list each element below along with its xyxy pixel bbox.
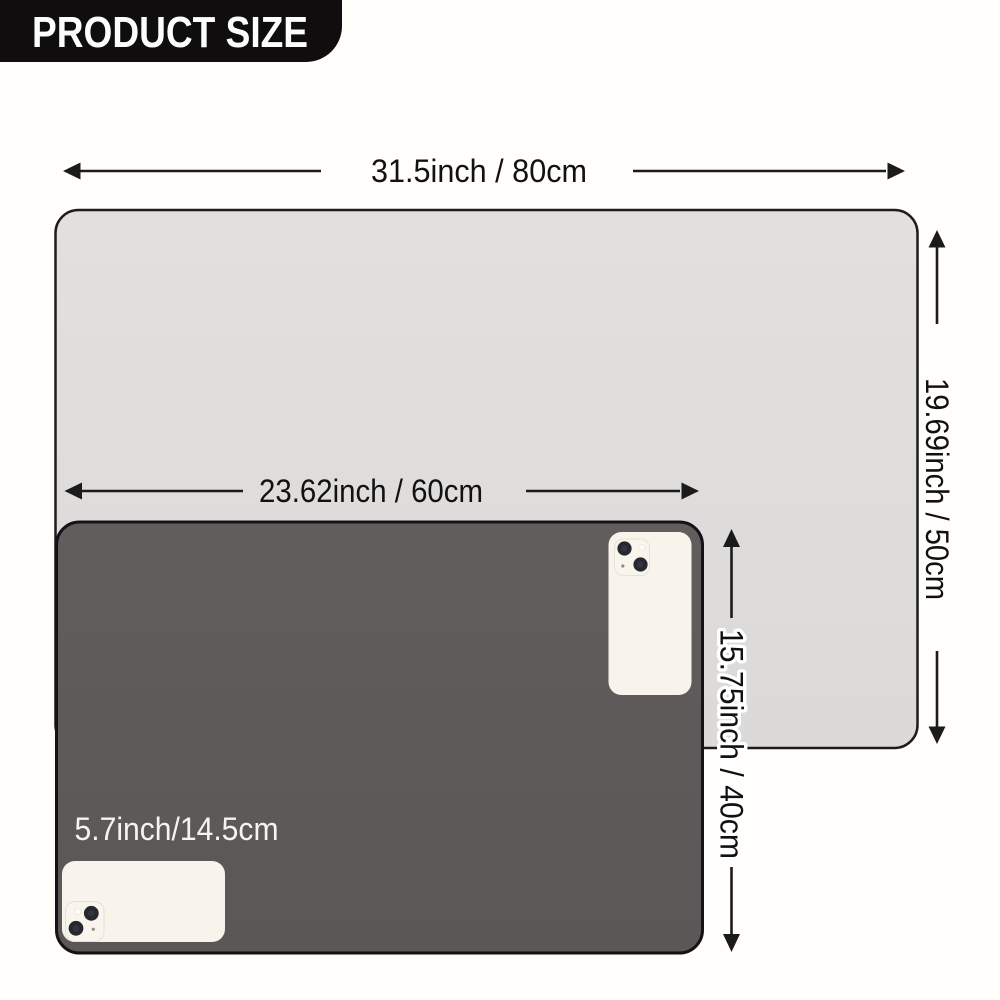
svg-text:15.75inch / 40cm: 15.75inch / 40cm (714, 629, 750, 859)
svg-text:PRODUCT SIZE: PRODUCT SIZE (32, 8, 308, 57)
svg-text:5.7inch/14.5cm: 5.7inch/14.5cm (75, 811, 279, 847)
svg-text:31.5inch / 80cm: 31.5inch / 80cm (371, 153, 587, 189)
svg-text:23.62inch / 60cm: 23.62inch / 60cm (259, 473, 483, 509)
svg-text:19.69inch / 50cm: 19.69inch / 50cm (919, 378, 955, 600)
